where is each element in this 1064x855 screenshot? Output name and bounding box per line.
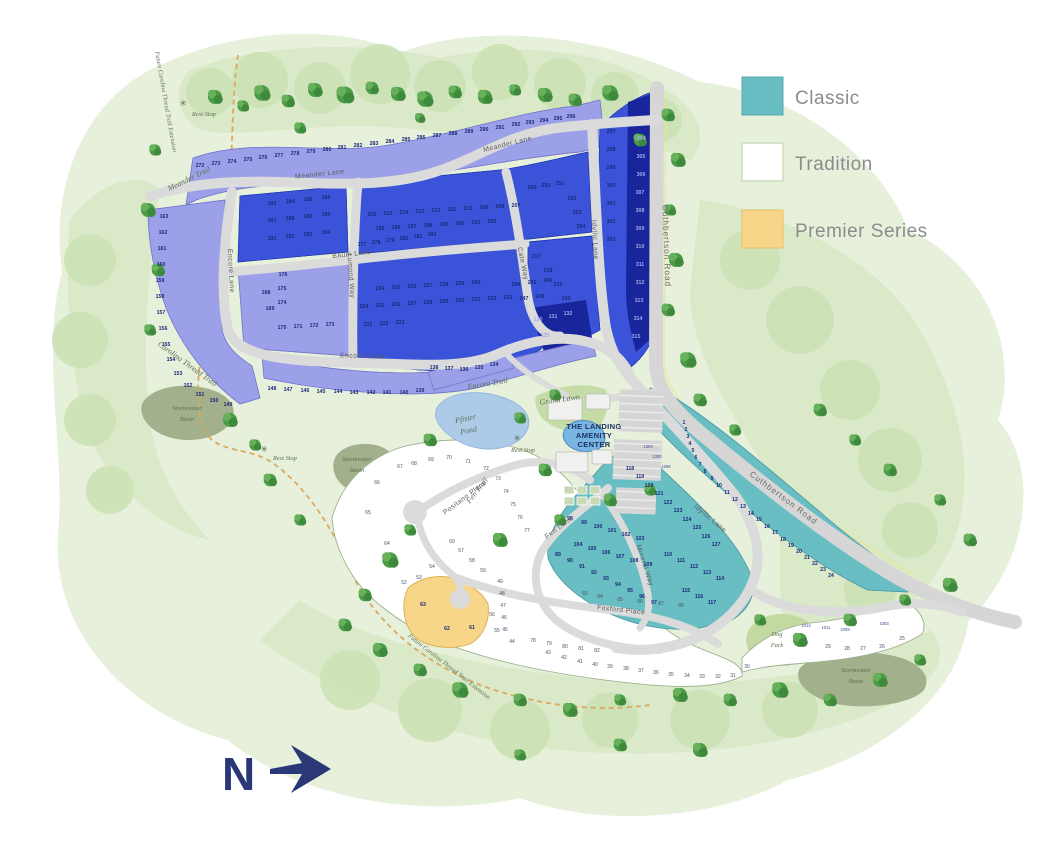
lot-number: 274 xyxy=(228,159,237,165)
lot-number: 249 xyxy=(528,185,537,191)
lot-number: 22 xyxy=(812,561,818,567)
lot-number: 240 xyxy=(472,280,481,286)
lot-number: 57 xyxy=(458,548,464,554)
lot-number: 82 xyxy=(594,648,600,654)
lots-block-b1 xyxy=(238,186,348,262)
lot-number: 54 xyxy=(429,564,435,570)
rest-stop-label-north: Rest Stop xyxy=(191,111,216,118)
lot-number: 34 xyxy=(684,673,690,679)
lot-number: 244 xyxy=(512,282,521,288)
lot-number: 134 xyxy=(490,362,499,368)
lot-number: 75 xyxy=(510,502,516,508)
lot-number: 92 xyxy=(591,570,597,576)
basin-label-east-1: Stormwater xyxy=(841,667,871,674)
lot-number: 65 xyxy=(365,510,371,516)
lot-number: 25 xyxy=(899,636,905,642)
lot-number: 193 xyxy=(304,232,313,238)
lot-number: 175 xyxy=(278,286,287,292)
lot-number: 223 xyxy=(396,320,405,326)
lot-number: 219 xyxy=(554,282,563,288)
lot-number: 45 xyxy=(502,627,508,633)
lot-number: 173 xyxy=(326,322,335,328)
lot-number: 221 xyxy=(364,322,373,328)
lot-number: 287 xyxy=(433,133,442,139)
lot-number: 283 xyxy=(370,141,379,147)
lot-number: 81 xyxy=(578,646,584,652)
lot-number: 4 xyxy=(689,441,692,447)
lot-number: 13 xyxy=(740,504,746,510)
lot-number: 79 xyxy=(546,641,552,647)
lot-number: 237 xyxy=(424,283,433,289)
lot-number: 309 xyxy=(636,226,645,232)
lot-number: 1012 xyxy=(801,623,811,628)
basin-label-mid-2: Basin xyxy=(350,467,365,474)
lot-number: 179 xyxy=(386,238,395,244)
lot-number: 228 xyxy=(424,300,433,306)
lot-number: 208 xyxy=(496,204,505,210)
lot-number: 114 xyxy=(716,576,724,582)
lot-number: 137 xyxy=(445,366,454,372)
lot-number: 253 xyxy=(573,210,582,216)
lot-number: 24 xyxy=(828,573,834,579)
lot-number: 17 xyxy=(772,530,778,536)
lot-number: 16 xyxy=(764,524,770,530)
lot-number: 61 xyxy=(469,625,475,631)
lot-number: 224 xyxy=(360,304,369,310)
lot-number: 238 xyxy=(440,282,449,288)
lot-number: 227 xyxy=(408,301,417,307)
legend-swatch-premier xyxy=(742,210,783,248)
lot-number: 246 xyxy=(544,278,553,284)
lot-number: 142 xyxy=(367,390,376,396)
lot-number: 38 xyxy=(623,666,629,672)
lot-number: 20 xyxy=(796,549,802,555)
lot-number: 311 xyxy=(636,262,644,268)
lot-number: 108 xyxy=(630,558,639,564)
lot-number: 121 xyxy=(655,491,664,497)
lot-number: 48 xyxy=(499,591,505,597)
lot-number: 123 xyxy=(674,508,683,514)
lot-number: 95 xyxy=(627,588,633,594)
lot-number: 36 xyxy=(653,670,659,676)
lot-number: 230 xyxy=(456,298,465,304)
lot-number: 181 xyxy=(414,234,423,240)
lot-number: 295 xyxy=(554,116,563,122)
lot-number: 188 xyxy=(286,216,295,222)
lot-number: 132 xyxy=(564,311,573,317)
lot-number: 94 xyxy=(615,582,621,588)
lot-number: 1296 xyxy=(661,464,671,469)
lot-number: 296 xyxy=(567,114,576,120)
lot-number: 168 xyxy=(262,290,271,296)
lot-number: 229 xyxy=(440,299,449,305)
lot-number: 39 xyxy=(607,664,613,670)
legend-swatch-tradition xyxy=(742,143,783,181)
lot-number: 55 xyxy=(494,628,500,634)
lot-number: 289 xyxy=(465,129,474,135)
lot-number: 70 xyxy=(446,455,452,461)
basin-label-west-1: Stormwater xyxy=(172,405,202,412)
lot-number: 102 xyxy=(622,532,631,538)
lot-number: 310 xyxy=(636,244,645,250)
lot-number: 71 xyxy=(465,459,471,465)
lot-number: 172 xyxy=(310,323,319,329)
lot-number: 122 xyxy=(664,500,673,506)
lot-number: 186 xyxy=(322,195,331,201)
lot-number: 138 xyxy=(430,365,439,371)
lot-number: 133 xyxy=(541,333,550,339)
lot-number: 254 xyxy=(577,224,586,230)
lots-navy-column xyxy=(626,94,652,352)
culdesac-west xyxy=(403,500,427,524)
culdesac-premier xyxy=(450,589,470,609)
lot-number: 220 xyxy=(562,296,571,302)
lot-number: 111 xyxy=(677,558,685,564)
lot-number: 35 xyxy=(668,672,674,678)
lot-number: 234 xyxy=(376,286,385,292)
lot-number: 314 xyxy=(634,316,643,322)
lot-number: 7 xyxy=(699,462,702,468)
lot-number: 106 xyxy=(602,550,611,556)
lot-number: 14 xyxy=(748,511,754,517)
lot-number: 88 xyxy=(678,603,684,609)
lot-number: 210 xyxy=(464,206,473,212)
lot-number: 248 xyxy=(536,294,545,300)
lot-number: 290 xyxy=(480,127,489,133)
lot-number: 141 xyxy=(383,390,392,396)
lot-number: 28 xyxy=(844,646,850,652)
lot-number: 100 xyxy=(594,524,603,530)
lot-number: 115 xyxy=(682,588,690,594)
lot-number: 171 xyxy=(294,324,303,330)
lot-number: 1 xyxy=(683,420,686,426)
lot-number: 207 xyxy=(512,203,521,209)
lot-number: 286 xyxy=(417,135,426,141)
lot-number: 158 xyxy=(156,294,165,300)
lot-number: 147 xyxy=(284,387,293,393)
lot-number: 15 xyxy=(756,517,762,523)
lot-number: 197 xyxy=(408,224,417,230)
lot-number: 56 xyxy=(489,612,495,618)
lot-number: 282 xyxy=(354,143,363,149)
lot-number: 29 xyxy=(825,644,831,650)
lot-number: 200 xyxy=(456,221,465,227)
lot-number: 118 xyxy=(626,466,634,472)
lot-number: 41 xyxy=(577,659,583,665)
legend-swatch-classic xyxy=(742,77,783,115)
lot-number: 72 xyxy=(483,466,489,472)
lot-number: 187 xyxy=(268,218,277,224)
lot-number: 212 xyxy=(432,208,441,214)
lot-number: 149 xyxy=(224,402,233,408)
lot-number: 294 xyxy=(540,118,549,124)
lot-number: 3 xyxy=(687,434,690,440)
lots-block-b2 xyxy=(238,260,350,356)
lot-number: 120 xyxy=(645,483,654,489)
lot-number: 43 xyxy=(545,650,551,656)
basin-label-west-2: Basin xyxy=(180,416,195,423)
amenity-label-line1: THE LANDING xyxy=(566,422,621,431)
lot-number: 189 xyxy=(304,214,313,220)
lot-number: 62 xyxy=(444,626,450,632)
lot-number: 153 xyxy=(174,371,183,377)
lot-number: 177 xyxy=(358,242,367,248)
lot-number: 63 xyxy=(420,602,426,608)
lot-number: 130 xyxy=(534,317,543,323)
lot-number: 6 xyxy=(695,455,698,461)
lot-number: 42 xyxy=(561,655,567,661)
lot-number: 136 xyxy=(460,367,469,373)
lot-number: 303 xyxy=(607,237,616,243)
lot-number: 284 xyxy=(386,139,395,145)
lot-number: 312 xyxy=(636,280,645,286)
lot-number: 185 xyxy=(304,197,313,203)
lot-number: 58 xyxy=(469,558,475,564)
legend-label-tradition: Tradition xyxy=(795,154,873,175)
lot-number: 299 xyxy=(607,165,616,171)
lot-number: 78 xyxy=(530,638,536,644)
lot-number: 215 xyxy=(384,211,393,217)
lot-number: 21 xyxy=(804,555,810,561)
lot-number: 116 xyxy=(695,594,703,600)
lot-number: 305 xyxy=(637,154,646,160)
north-arrow-n-label: N xyxy=(222,748,255,800)
lot-number: 127 xyxy=(712,542,721,548)
lot-number: 217 xyxy=(532,254,541,260)
lot-number: 192 xyxy=(286,234,295,240)
lot-number: 157 xyxy=(157,310,166,316)
lot-number: 10 xyxy=(716,483,722,489)
lot-number: 85 xyxy=(617,597,623,603)
lot-number: 160 xyxy=(157,262,166,268)
lot-number: 44 xyxy=(509,639,515,645)
rest-stop-icon-amenity: ✳ xyxy=(513,433,521,443)
lot-number: 83 xyxy=(582,591,588,597)
lot-number: 163 xyxy=(160,214,169,220)
lot-number: 159 xyxy=(156,278,165,284)
lot-number: 218 xyxy=(544,268,553,274)
legend-label-premier: Premier Series xyxy=(795,221,928,242)
lot-number: 110 xyxy=(664,552,672,558)
lot-number: 49 xyxy=(497,579,503,585)
lot-number: 209 xyxy=(480,205,489,211)
lot-number: 190 xyxy=(322,212,331,218)
lot-number: 73 xyxy=(495,476,501,482)
lot-number: 12 xyxy=(732,497,738,503)
lot-number: 46 xyxy=(501,615,507,621)
lot-number: 76 xyxy=(517,515,523,521)
lot-number: 87 xyxy=(658,601,664,607)
lot-number: 196 xyxy=(392,225,401,231)
lot-number: 275 xyxy=(244,157,253,163)
lot-number: 59 xyxy=(480,568,486,574)
lot-number: 9 xyxy=(711,476,714,482)
lot-number: 37 xyxy=(638,668,644,674)
lot-number: 293 xyxy=(526,120,535,126)
lot-number: 233 xyxy=(504,295,513,301)
lot-number: 231 xyxy=(472,297,481,303)
lot-number: 5 xyxy=(692,448,695,454)
place-label-park: Park xyxy=(770,642,784,649)
lot-number: 67 xyxy=(397,464,403,470)
lot-number: 199 xyxy=(440,222,449,228)
lot-number: 135 xyxy=(475,365,484,371)
lot-number: 119 xyxy=(636,474,644,480)
lot-number: 113 xyxy=(703,570,711,576)
lot-number: 30 xyxy=(744,664,750,670)
lot-number: 64 xyxy=(384,541,390,547)
lot-number: 232 xyxy=(488,296,497,302)
lot-number: 211 xyxy=(448,207,456,213)
lot-number: 174 xyxy=(278,300,287,306)
lot-number: 156 xyxy=(159,326,168,332)
lot-number: 313 xyxy=(635,298,644,304)
lot-number: 1003 xyxy=(879,621,889,626)
lot-number: 304 xyxy=(637,136,646,142)
lot-number: 77 xyxy=(524,528,530,534)
lot-number: 107 xyxy=(616,554,625,560)
rest-stop-icon-north: ✳ xyxy=(179,98,187,108)
lot-number: 239 xyxy=(456,281,465,287)
lot-number: 8 xyxy=(704,469,707,475)
lot-number: 178 xyxy=(372,240,381,246)
amenity-label-line3: CENTER xyxy=(577,440,610,449)
lot-number: 307 xyxy=(636,190,645,196)
lot-number: 306 xyxy=(637,172,646,178)
lot-number: 2 xyxy=(685,427,688,433)
lot-number: 18 xyxy=(780,537,786,543)
lot-number: 86 xyxy=(637,599,643,605)
lot-number: 184 xyxy=(286,199,295,205)
lot-number: 144 xyxy=(334,389,343,395)
lot-number: 80 xyxy=(562,644,568,650)
lot-number: 277 xyxy=(275,153,284,159)
lot-number: 300 xyxy=(607,183,616,189)
lot-number: 148 xyxy=(268,386,277,392)
lot-number: 66 xyxy=(374,480,380,486)
lot-number: 126 xyxy=(702,534,711,540)
lot-number: 194 xyxy=(322,230,331,236)
lot-number: 68 xyxy=(411,461,417,467)
lot-number: 1300 xyxy=(652,454,662,459)
lot-number: 11 xyxy=(724,490,730,496)
lot-number: 145 xyxy=(317,389,326,395)
lot-number: 301 xyxy=(607,201,616,207)
lot-number: 40 xyxy=(592,662,598,668)
lot-number: 91 xyxy=(579,564,585,570)
amenity-building-3 xyxy=(556,452,588,472)
lot-number: 276 xyxy=(259,155,268,161)
lot-number: 191 xyxy=(268,236,277,242)
lot-number: 32 xyxy=(715,674,721,680)
lot-number: 195 xyxy=(376,226,385,232)
lot-number: 53 xyxy=(416,575,422,581)
lot-number: 52 xyxy=(401,580,407,586)
basin-label-east-2: Basin xyxy=(849,678,864,685)
lot-number: 74 xyxy=(503,489,509,495)
lot-number: 245 xyxy=(528,280,537,286)
lot-number: 288 xyxy=(449,131,458,137)
lot-number: 222 xyxy=(380,321,389,327)
lot-number: 281 xyxy=(338,145,347,151)
legend-label-classic: Classic xyxy=(795,88,860,109)
lot-number: 298 xyxy=(607,147,616,153)
lot-number: 19 xyxy=(788,543,794,549)
lot-number: 97 xyxy=(651,600,657,606)
amenity-label-line2: AMENITY xyxy=(576,431,612,440)
legend: Classic Tradition Premier Series xyxy=(742,77,928,248)
lot-number: 252 xyxy=(568,196,577,202)
rest-stop-icon-west: ✳ xyxy=(260,444,268,454)
lot-number: 151 xyxy=(196,392,205,398)
rest-stop-label-amenity: Rest Stop xyxy=(510,447,535,454)
site-map-page: 2722732742752762772782792802812822832842… xyxy=(0,0,1064,855)
lot-number: 89 xyxy=(555,552,561,558)
lot-number: 180 xyxy=(400,236,409,242)
lot-number: 280 xyxy=(323,147,332,153)
lot-number: 225 xyxy=(376,303,385,309)
lot-number: 23 xyxy=(820,567,826,573)
lot-number: 247 xyxy=(520,296,529,302)
lot-number: 308 xyxy=(636,208,645,214)
lot-number: 202 xyxy=(488,219,497,225)
lot-number: 302 xyxy=(607,219,616,225)
lot-number: 213 xyxy=(416,209,425,215)
lot-number: 291 xyxy=(496,125,505,131)
lot-number: 143 xyxy=(350,390,359,396)
lot-number: 214 xyxy=(400,210,409,216)
lot-number: 150 xyxy=(210,398,219,404)
place-label-dog: Dog xyxy=(770,631,783,638)
site-map-canvas: 2722732742752762772782792802812822832842… xyxy=(0,0,1064,855)
lot-number: 140 xyxy=(400,390,409,396)
lot-number: 99 xyxy=(581,520,587,526)
lot-number: 278 xyxy=(291,151,300,157)
lot-number: 315 xyxy=(632,334,641,340)
lot-number: 285 xyxy=(402,137,411,143)
lot-number: 297 xyxy=(607,129,616,135)
lot-number: 161 xyxy=(158,246,167,252)
amenity-building-4 xyxy=(592,450,612,464)
lot-number: 250 xyxy=(542,183,551,189)
lot-number: 112 xyxy=(690,564,698,570)
lot-number: 69 xyxy=(428,457,434,463)
lot-number: 182 xyxy=(428,232,437,238)
lot-number: 152 xyxy=(184,383,193,389)
lot-number: 183 xyxy=(268,201,277,207)
lot-number: 1011 xyxy=(821,625,831,630)
lot-number: 279 xyxy=(307,149,316,155)
lot-number: 139 xyxy=(416,388,425,394)
lot-number: 131 xyxy=(549,314,558,320)
lot-number: 235 xyxy=(392,285,401,291)
lot-number: 60 xyxy=(449,539,455,545)
lot-number: 90 xyxy=(567,558,573,564)
lot-number: 93 xyxy=(603,576,609,582)
lot-number: 198 xyxy=(424,223,433,229)
lot-number: 226 xyxy=(392,302,401,308)
basin-label-mid-1: Stormwater xyxy=(342,456,372,463)
lot-number: 169 xyxy=(266,306,275,312)
lot-number: 84 xyxy=(597,594,603,600)
lot-number: 201 xyxy=(472,220,481,226)
lot-number: 146 xyxy=(301,388,310,394)
lot-number: 105 xyxy=(588,546,597,552)
lot-number: 292 xyxy=(512,122,521,128)
lot-number: 101 xyxy=(608,528,617,534)
lot-number: 117 xyxy=(708,600,716,606)
lot-number: 27 xyxy=(860,646,866,652)
